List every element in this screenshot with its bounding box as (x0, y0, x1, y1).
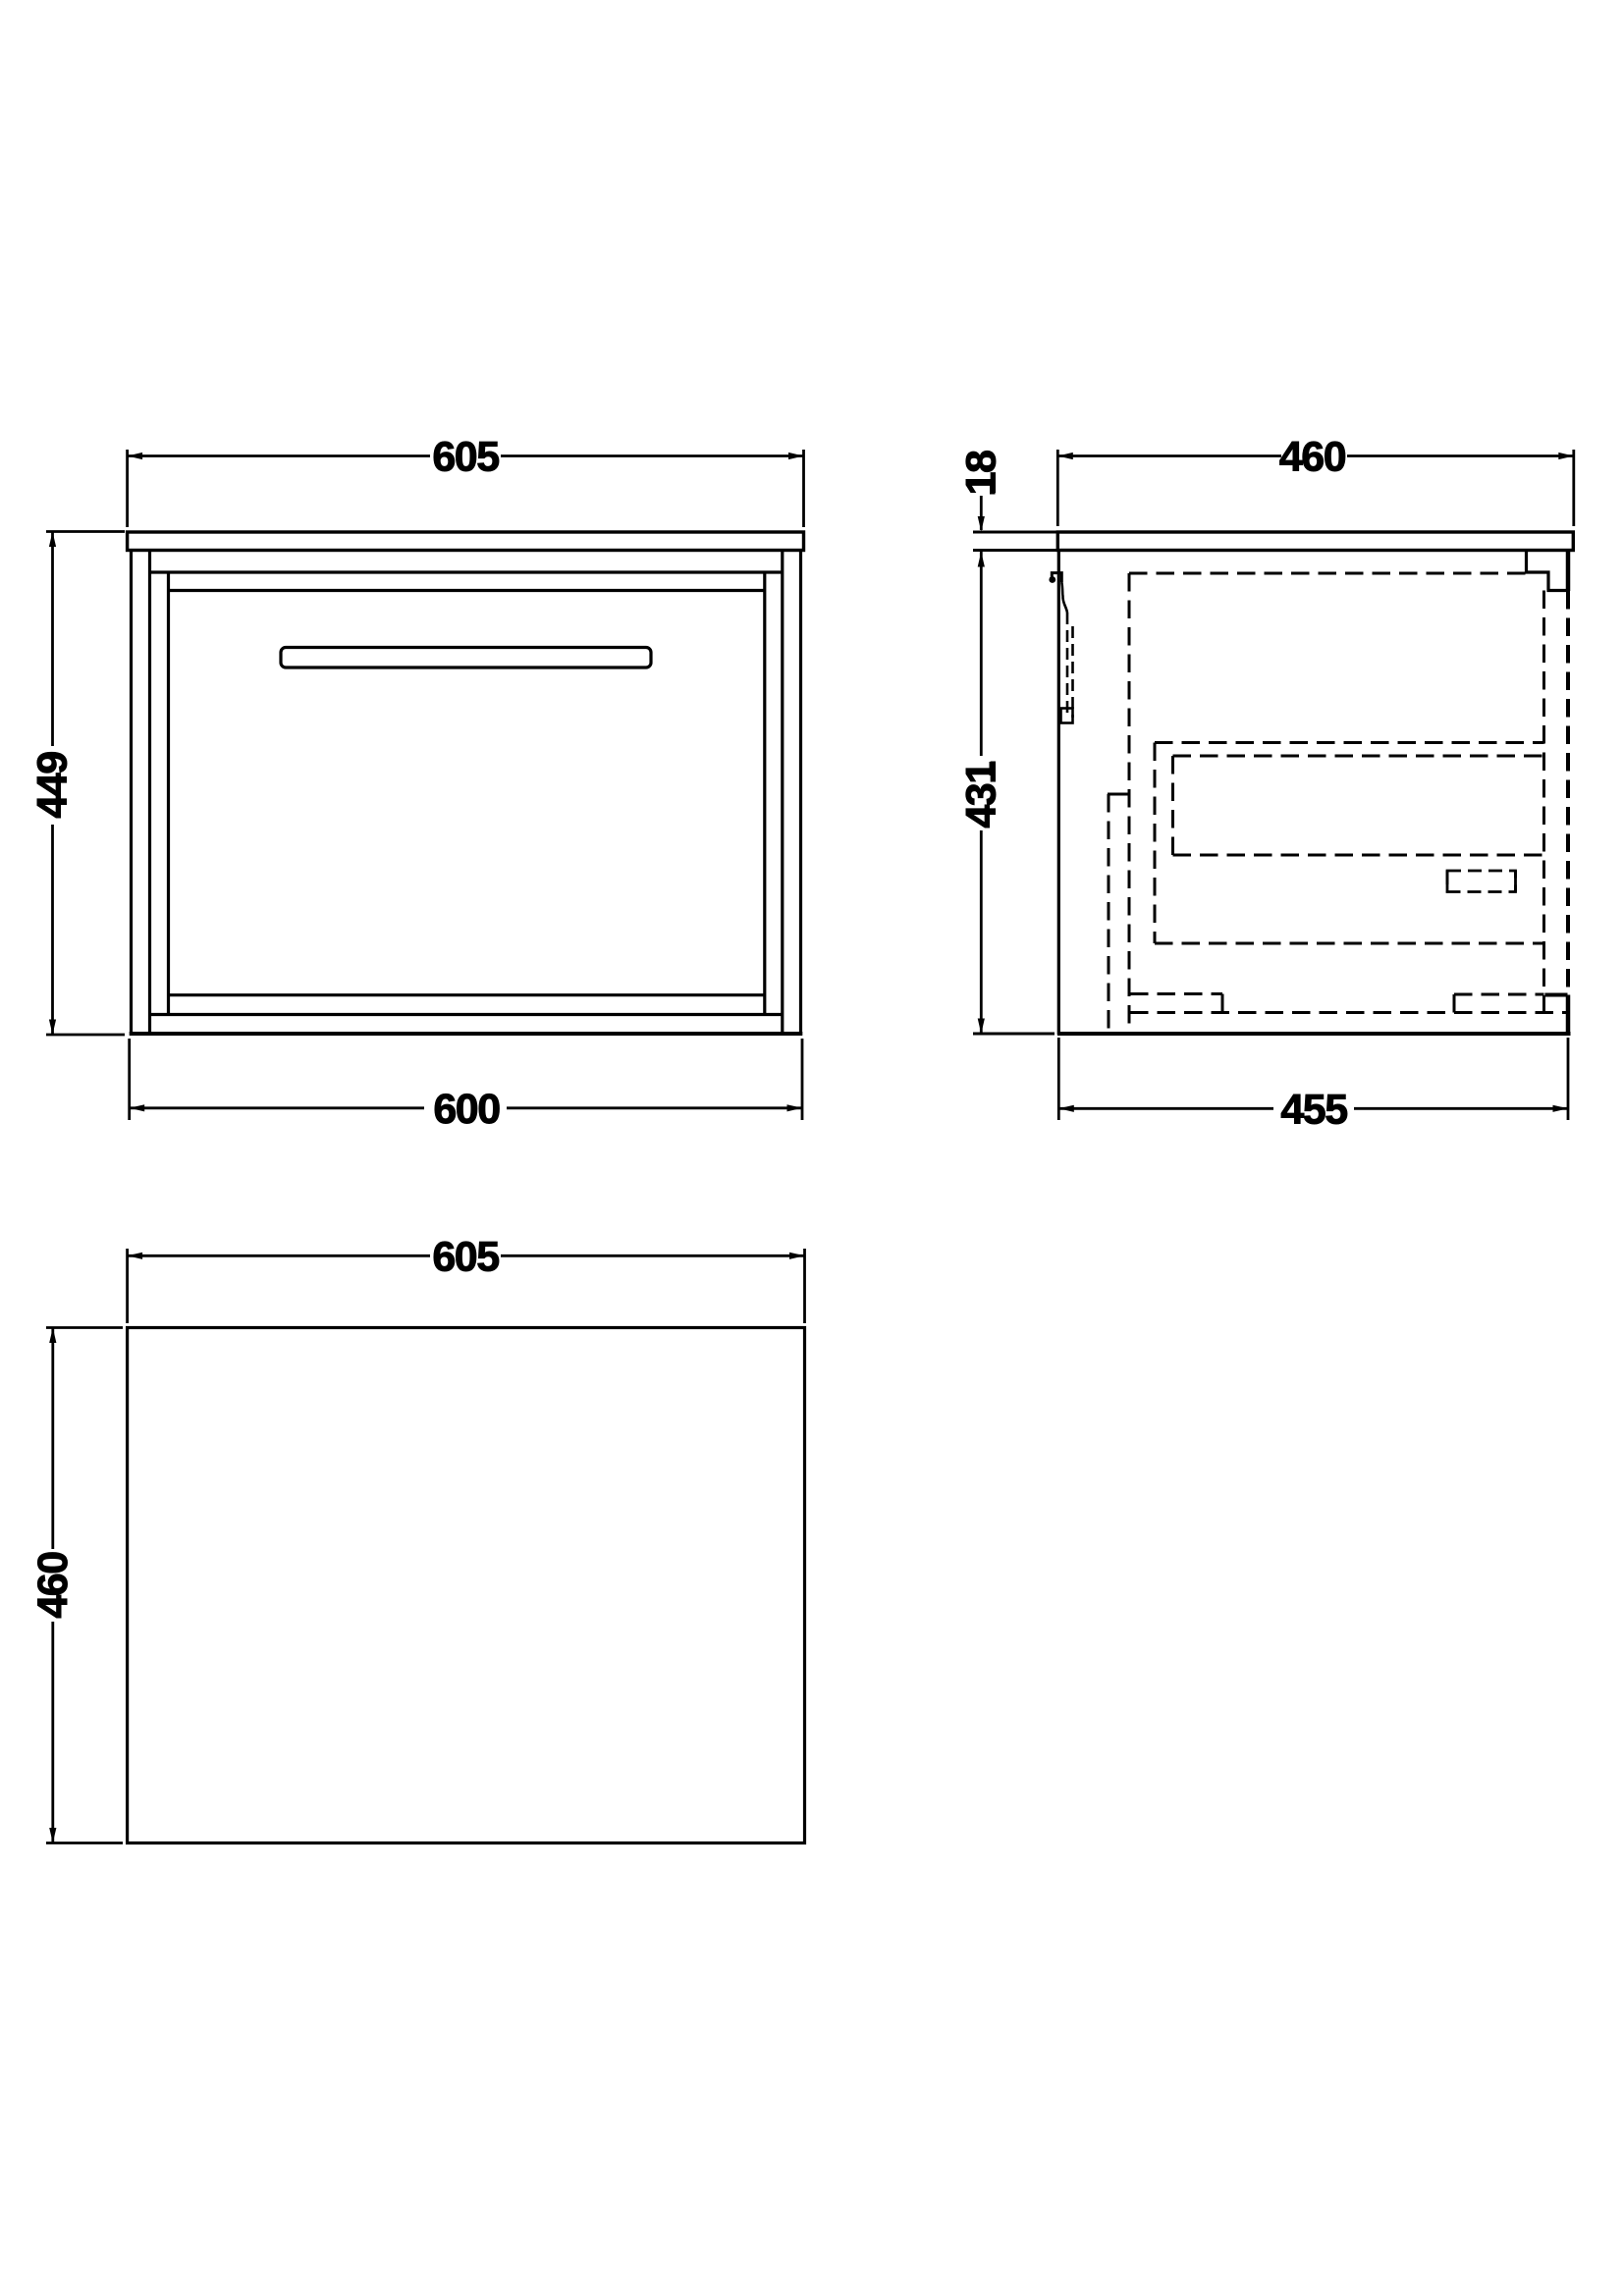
svg-text:605: 605 (432, 1233, 499, 1280)
svg-text:460: 460 (29, 1552, 77, 1619)
svg-text:449: 449 (29, 752, 77, 819)
svg-text:460: 460 (1279, 434, 1346, 481)
svg-text:431: 431 (957, 762, 1004, 828)
svg-text:605: 605 (432, 434, 499, 481)
svg-text:18: 18 (958, 451, 1005, 495)
svg-text:600: 600 (433, 1086, 500, 1133)
svg-text:455: 455 (1280, 1086, 1347, 1133)
